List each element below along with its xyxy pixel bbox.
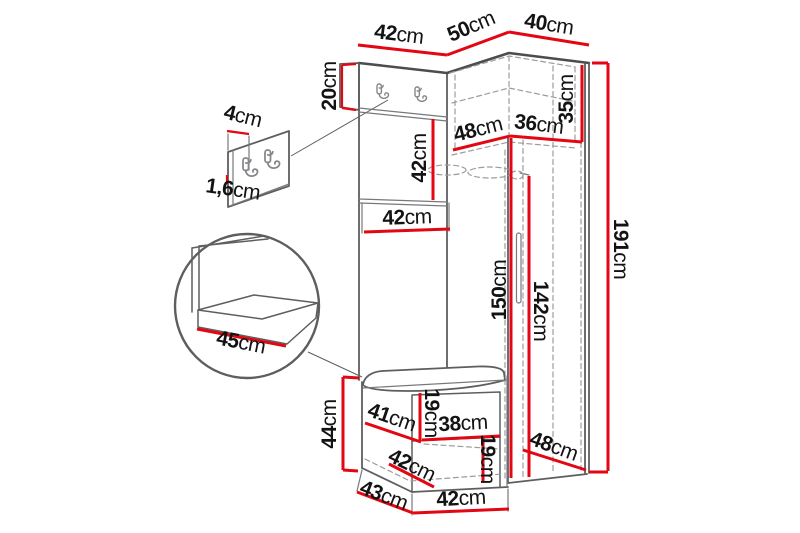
dim-label-panel-width: 42cm	[382, 205, 432, 230]
dim-label-rail-height: 150cm	[488, 260, 511, 321]
dim-line-top-width	[358, 45, 447, 55]
dim-label-bench-height: 44cm	[318, 399, 341, 448]
dim-label-hook-spacing: 4cm	[222, 100, 265, 132]
wardrobe-bottom-edge	[508, 474, 587, 483]
dim-label-hook-board-height: 20cm	[318, 61, 341, 110]
dim-line-bench-height	[343, 377, 359, 471]
coat-hook-icon	[377, 84, 389, 98]
dim-label-panel-height: 42cm	[408, 133, 431, 182]
magnifier-circle	[175, 234, 319, 378]
wardrobe-top-edges	[447, 53, 589, 73]
dim-line-total-height	[589, 63, 608, 472]
dim-label-total-height: 191cm	[610, 219, 633, 280]
door-handle-icon	[517, 233, 522, 303]
dim-line-hook-spacing	[227, 131, 249, 134]
dim-label-top-width: 42cm	[373, 20, 425, 49]
coat-hook-icon	[415, 87, 427, 101]
hanging-rail-end	[520, 173, 529, 175]
hanging-rail-hidden	[468, 167, 512, 178]
diagram-canvas: 42cm 50cm 40cm 20cm 42cm 42cm 4cm 1,6cm …	[0, 0, 800, 533]
dim-line-corner-right-width	[510, 136, 582, 142]
dim-label-lower-gap: 19cm	[477, 434, 500, 483]
dim-label-bench-left-width: 41cm	[365, 398, 419, 436]
dim-label-bench-bottom-side: 43cm	[357, 475, 411, 514]
hanging-rail-bracket-hidden	[511, 171, 523, 179]
hidden-shelf-edges	[452, 142, 576, 155]
dim-line-bench-bottom-width	[413, 509, 509, 513]
dim-line-panel-width	[364, 229, 450, 232]
seat-detail-pointer-line	[308, 352, 362, 377]
panel-top-edge	[359, 63, 447, 73]
wardrobe-right-side-edges	[585, 63, 589, 473]
dim-label-shelf-width: 38cm	[438, 410, 488, 436]
dim-label-top-shelf-height: 35cm	[555, 74, 578, 123]
dim-label-bench-bottom-width: 42cm	[436, 485, 486, 511]
dim-label-door-height: 142cm	[530, 281, 553, 342]
furniture-dimension-diagram: 42cm 50cm 40cm 20cm 42cm 42cm 4cm 1,6cm …	[0, 0, 800, 533]
magnifier-circle-detail	[175, 234, 319, 378]
dim-label-corner-left-depth: 48cm	[451, 112, 504, 146]
dim-line-hook-board-height	[342, 64, 356, 110]
